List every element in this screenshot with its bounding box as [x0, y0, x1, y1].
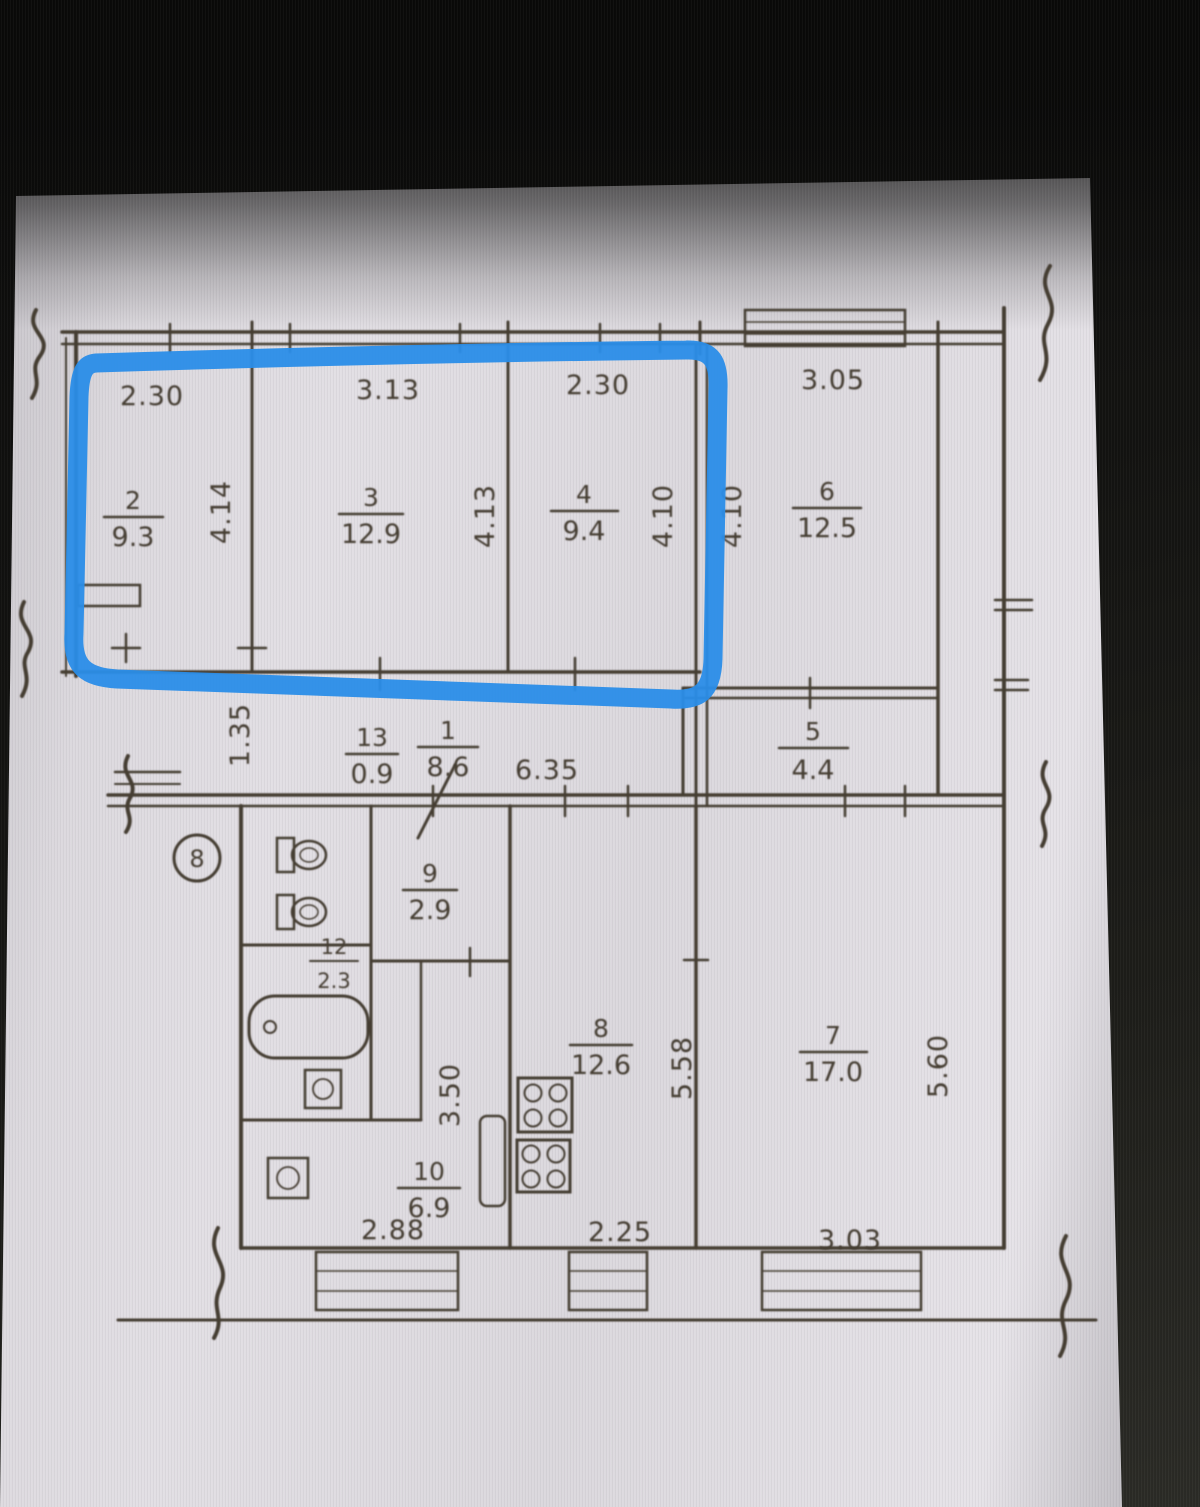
dim-room8-depth: 5.58: [667, 1036, 698, 1100]
dim-corridor-length: 6.35: [515, 755, 579, 786]
room4-area: 9.4: [563, 516, 606, 547]
room1-number: 1: [440, 716, 456, 745]
room12-area: 2.3: [317, 969, 350, 993]
stove-icon: [517, 1140, 570, 1192]
bathtub-icon: [249, 996, 368, 1058]
room12-number: 12: [321, 935, 348, 959]
room5-number: 5: [805, 717, 821, 746]
walls: [62, 308, 1096, 1320]
ink-layer: [21, 266, 1096, 1356]
dimension-ticks: [112, 322, 1032, 976]
room8-area: 12.6: [571, 1050, 631, 1081]
room13-number: 13: [356, 723, 388, 752]
bottom-windows: [316, 1252, 921, 1310]
room6-area: 12.5: [797, 513, 857, 544]
dim-hall-length: 3.50: [435, 1063, 466, 1127]
dim-room6-width: 3.05: [801, 365, 865, 396]
dim-room3-depth: 4.13: [470, 484, 501, 548]
toilet-icon: [277, 838, 326, 872]
room9-number: 9: [422, 859, 438, 888]
window-sill: [78, 585, 140, 606]
room13-area: 0.9: [351, 759, 394, 790]
dim-hall-width: 1.35: [225, 703, 256, 767]
dim-room8-width: 2.25: [588, 1217, 652, 1248]
dim-room3-width: 3.13: [356, 375, 420, 406]
dim-room2-width: 2.30: [120, 381, 184, 412]
room9-area: 2.9: [409, 895, 452, 926]
dim-room4-width: 2.30: [566, 370, 630, 401]
room2-area: 9.3: [112, 522, 155, 553]
door-leaf: [480, 1116, 505, 1206]
room7-area: 17.0: [803, 1057, 863, 1088]
room3-area: 12.9: [341, 519, 401, 550]
sink-icon: [268, 1158, 308, 1198]
label-layer: 2.30 3.13 2.30 3.05 2 9.3 3 12.9 4 9.4 6…: [112, 365, 954, 1256]
dim-room10-width: 2.88: [361, 1215, 425, 1246]
dim-room2-depth: 4.14: [206, 480, 237, 544]
balcony-hatch: [745, 310, 905, 346]
room10-number: 10: [413, 1157, 445, 1186]
room4-number: 4: [576, 480, 592, 509]
room8-number: 8: [593, 1014, 609, 1043]
dim-room7-depth: 5.60: [923, 1034, 954, 1098]
room7-number: 7: [825, 1021, 841, 1050]
room5-area: 4.4: [792, 755, 835, 786]
room1-area: 8.6: [427, 752, 470, 783]
dim-room7-width: 3.03: [818, 1225, 882, 1256]
sink-icon: [305, 1070, 341, 1108]
entrance-mark-label: 8: [189, 845, 204, 873]
dim-room4-depth: 4.10: [648, 484, 679, 548]
toilet-icon: [277, 895, 326, 929]
room6-number: 6: [819, 477, 835, 506]
room2-number: 2: [125, 486, 141, 515]
stove-icon: [518, 1078, 572, 1132]
room3-number: 3: [363, 483, 379, 512]
floor-plan-drawing: 2.30 3.13 2.30 3.05 2 9.3 3 12.9 4 9.4 6…: [0, 0, 1200, 1507]
